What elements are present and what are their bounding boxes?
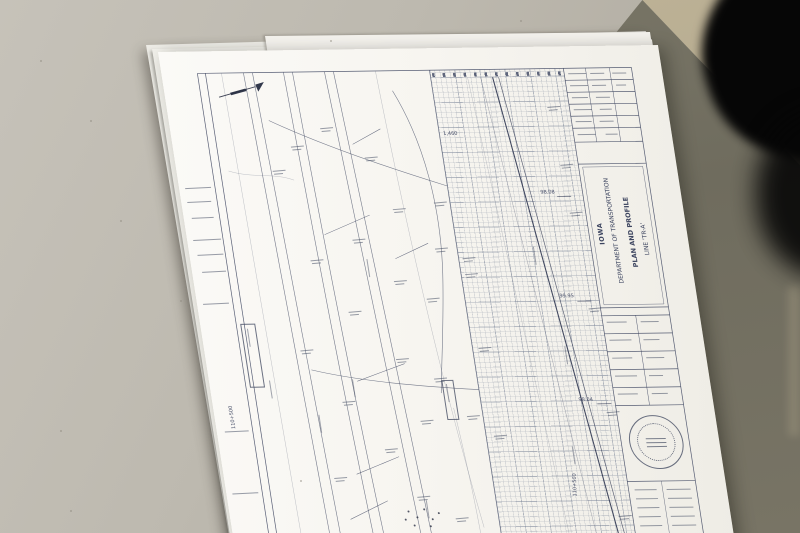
desk-speck bbox=[60, 430, 62, 432]
profile-grid-top-label: 1,460 bbox=[443, 132, 458, 137]
desk-edge-highlight bbox=[788, 286, 800, 436]
annotation-mark bbox=[572, 97, 588, 98]
annotation-mark bbox=[649, 375, 663, 376]
annotation-mark bbox=[600, 121, 614, 122]
annotation-mark bbox=[590, 73, 604, 74]
annotation-mark bbox=[616, 84, 626, 85]
plan-profile-sheet: 110+500 1,460 98.08 99.95 98.04 110+500 … bbox=[158, 45, 748, 533]
desk-speck bbox=[300, 480, 302, 482]
north-arrow-icon bbox=[230, 90, 247, 94]
grade-station-label: 110+500 bbox=[573, 473, 579, 497]
desk-speck bbox=[70, 510, 72, 512]
desk-speck bbox=[40, 60, 42, 62]
elevation-callout: 98.04 bbox=[578, 398, 593, 403]
annotation-mark bbox=[600, 109, 612, 110]
annotation-mark bbox=[596, 97, 610, 98]
desk-speck bbox=[120, 220, 122, 222]
desk-speck bbox=[330, 40, 332, 42]
elevation-callout: 98.08 bbox=[540, 190, 555, 195]
annotation-mark bbox=[612, 72, 626, 73]
annotation-mark bbox=[606, 134, 618, 135]
annotation-mark bbox=[592, 85, 606, 86]
desk-speck bbox=[180, 300, 182, 302]
photo-scene: 110+500 1,460 98.08 99.95 98.04 110+500 … bbox=[0, 0, 800, 533]
desk-speck bbox=[90, 120, 92, 122]
annotation-mark bbox=[576, 121, 592, 122]
desk-speck bbox=[520, 20, 522, 22]
elevation-callout: 99.95 bbox=[559, 294, 574, 299]
